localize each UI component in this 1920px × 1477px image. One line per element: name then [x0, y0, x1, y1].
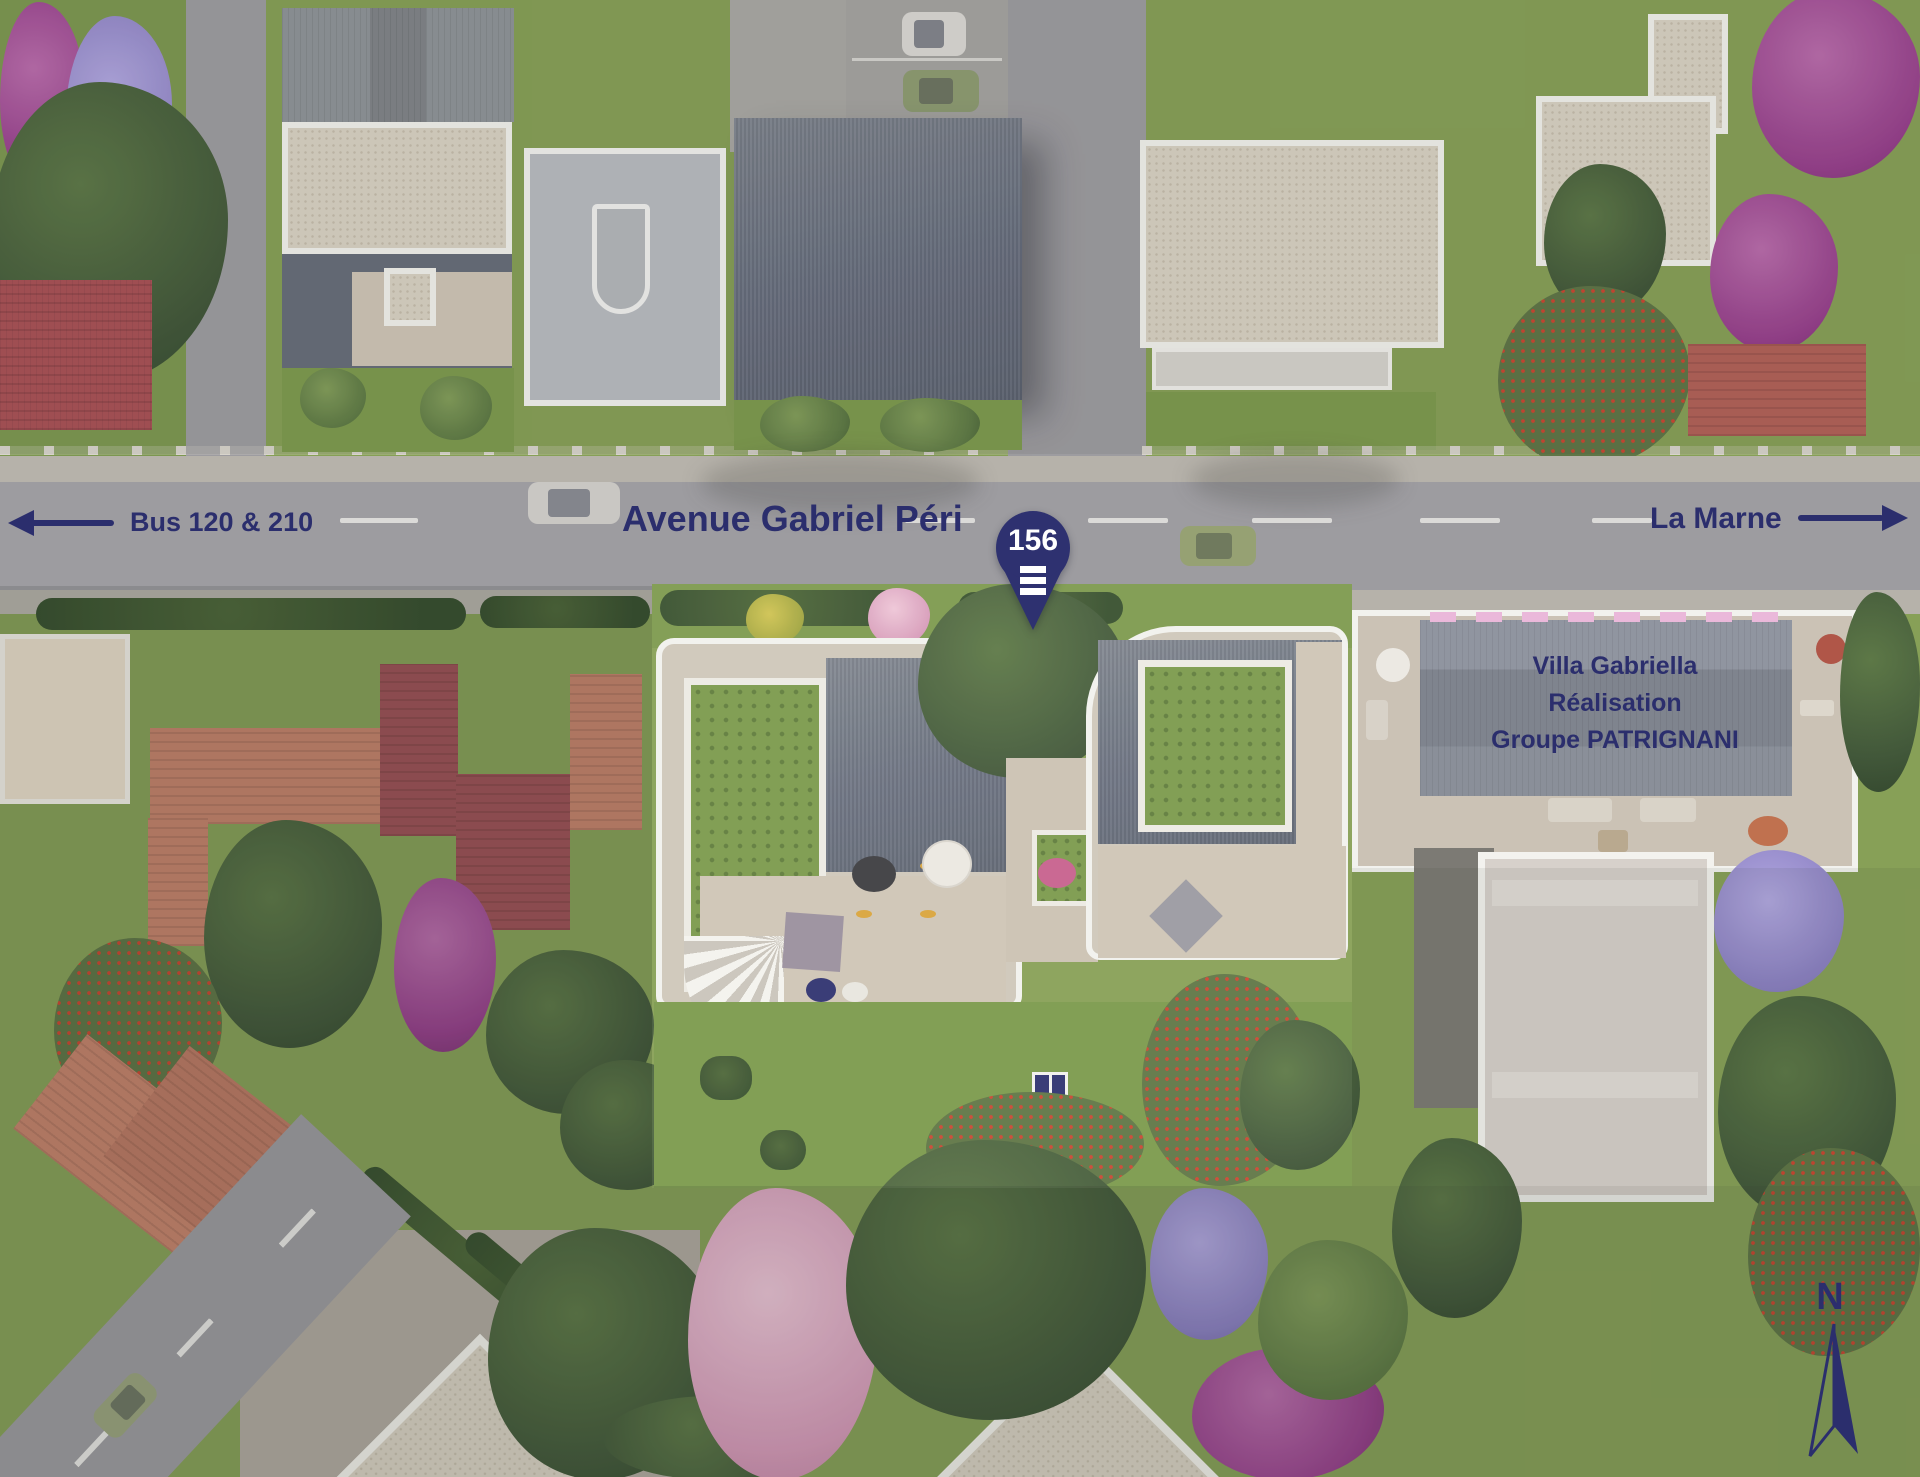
parked-car-white — [902, 12, 966, 56]
flowering-tree-red — [1498, 286, 1690, 468]
house-roof-darkred — [380, 664, 458, 836]
porch — [1152, 348, 1392, 390]
shrub — [760, 1130, 806, 1170]
flowering-tree-magenta — [1710, 194, 1838, 352]
parasol-white — [1376, 648, 1410, 682]
building-bay — [1492, 1072, 1698, 1098]
la-marne-direction: La Marne — [1650, 502, 1910, 536]
villa-line3: Groupe PATRIGNANI — [1448, 722, 1782, 759]
villa-name: Villa Gabriella — [1448, 648, 1782, 685]
lane-marking — [1592, 518, 1652, 523]
flowering-tree-magenta — [1752, 0, 1920, 178]
garden-strip — [1146, 392, 1436, 450]
shrub — [700, 1056, 752, 1100]
compass-north-label: N — [1778, 1276, 1882, 1319]
roof-flower-boxes — [1430, 612, 1786, 622]
building-dark-hip-roof — [734, 118, 1022, 400]
tree — [204, 820, 382, 1048]
villa-label: Villa Gabriella Réalisation Groupe PATRI… — [1448, 648, 1782, 759]
bus-direction: Bus 120 & 210 — [8, 510, 308, 540]
outdoor-table — [1598, 830, 1628, 852]
wing-terrace — [1098, 846, 1346, 958]
parked-car-green — [903, 70, 979, 112]
building-cream-flat — [0, 634, 130, 804]
arrow-right-icon — [1882, 505, 1908, 531]
hedge-row — [36, 598, 466, 630]
chair-set-pink — [1038, 858, 1076, 888]
pin-number: 156 — [993, 524, 1073, 558]
house-roof-salmon — [150, 728, 384, 824]
tree — [1258, 1240, 1408, 1400]
house-roof-red — [0, 280, 152, 430]
building-beige-gravel — [1140, 140, 1444, 348]
pin-bars-icon — [1020, 566, 1046, 595]
lane-marking — [1252, 518, 1332, 523]
car-on-road-silver — [528, 482, 620, 524]
shed-roof-red — [1688, 344, 1866, 436]
la-marne-label: La Marne — [1650, 502, 1782, 536]
roof-valley — [370, 8, 426, 122]
wing-terrace — [1296, 642, 1342, 862]
pin-bar — [1020, 577, 1046, 584]
parking-divider — [852, 58, 1002, 61]
roof-garden — [1138, 660, 1292, 832]
bus-label: Bus 120 & 210 — [130, 507, 313, 538]
address-pin[interactable]: 156 — [993, 506, 1073, 634]
house-roof-salmon — [148, 818, 208, 946]
roof-shield-detail — [592, 204, 650, 314]
roof-patch-gravel — [384, 268, 436, 326]
tree — [1840, 592, 1920, 792]
aerial-site-plan: Villa Gabriella Réalisation Groupe PATRI… — [0, 0, 1920, 1477]
outdoor-sofa — [1640, 798, 1696, 822]
pin-bar — [1020, 566, 1046, 573]
flowering-tree-magenta — [394, 878, 496, 1052]
arrow-right-shaft — [1798, 515, 1884, 521]
tree-shadow — [1190, 452, 1400, 508]
round-table-navy — [806, 978, 836, 1002]
avenue-label: Avenue Gabriel Péri — [622, 498, 963, 540]
parasol-round-white — [922, 840, 972, 888]
flat-roof-gravel — [282, 122, 512, 254]
outdoor-sofa — [1548, 798, 1612, 822]
lounger — [1366, 700, 1388, 740]
lane-marking — [340, 518, 418, 523]
table-set-red — [1748, 816, 1788, 846]
dining-table-dark — [852, 856, 896, 892]
hedge-row — [480, 596, 650, 628]
villa-line2: Réalisation — [1448, 685, 1782, 722]
pin-bar — [1020, 588, 1046, 595]
round-table-white — [842, 982, 868, 1002]
driveway-top — [1008, 0, 1146, 458]
pergola-square — [782, 912, 844, 972]
building-bay — [1492, 880, 1698, 906]
lane-marking — [1088, 518, 1168, 523]
compass: N — [1778, 1276, 1882, 1472]
arrow-left-shaft — [26, 520, 114, 526]
car-on-road-green — [1180, 526, 1256, 566]
hydrangea-bush — [1714, 850, 1844, 992]
lounger — [1800, 700, 1834, 716]
house-roof-salmon — [570, 674, 642, 830]
lane-marking — [1420, 518, 1500, 523]
north-arrow-icon — [1778, 1322, 1882, 1472]
tree — [1392, 1138, 1522, 1318]
flowering-tree-pink — [688, 1188, 878, 1477]
hydrangea-bush — [1150, 1188, 1268, 1340]
